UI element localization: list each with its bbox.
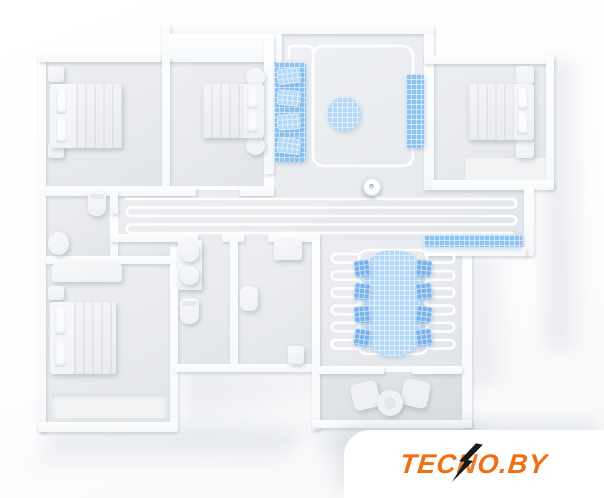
wall [38,52,168,62]
floor-wardrobe-platform [466,158,546,180]
dining-table-highlighted [364,250,422,356]
washbasin [48,232,69,255]
shadow-right-of-dining [470,256,525,386]
dining-chair [353,259,371,278]
blanket [468,84,514,140]
nightstand [48,286,64,300]
wall [170,264,178,422]
wall [176,364,312,372]
pillow [247,88,258,109]
wall [312,420,472,428]
wall [46,186,196,196]
shadow-right [548,60,600,350]
dining-chair [353,328,371,347]
corner-cabinet [274,240,302,260]
toilet [88,192,106,216]
wall [432,180,554,190]
dining-chair [415,282,433,301]
nightstand [516,66,534,84]
wall [462,240,472,428]
sofa-cushion [276,89,301,107]
tv-bench-highlighted [406,74,424,148]
blanket [74,302,116,374]
round-rug-highlighted [327,97,361,131]
sofa-cushion [276,137,302,156]
pillow [517,88,528,110]
brand-text-pre: TEC [399,451,459,478]
toilet [180,298,199,324]
blanket [202,84,244,138]
floorplan-scene: TEC N O.BY [0,0,604,498]
dining-chair [415,259,433,278]
wall [264,34,274,174]
shadow-bottom-left [23,430,305,482]
bath-fixture [288,346,304,364]
blanket [76,84,122,148]
balcony-chair [399,377,431,409]
robot-vacuum [363,178,381,196]
brand-letter-n: N [456,449,480,480]
wall [424,247,526,256]
sofa-highlighted [274,62,306,162]
dining-chair [415,328,433,347]
balcony-table [377,390,403,416]
wall [524,186,534,256]
sofa-cushion [276,67,302,86]
wall [318,366,384,374]
wall [424,56,554,64]
shadow-bottom-middle [185,372,330,442]
pillow [517,113,528,135]
wall [162,24,434,34]
bed [50,84,122,148]
sink [180,266,199,285]
brand-text-post: O.BY [476,451,549,478]
wall [162,56,170,192]
pillow [56,118,67,143]
floor-entry-nook [118,240,170,256]
pillow [55,340,66,367]
pillow [247,112,258,133]
wall [46,256,178,264]
low-dresser [52,394,166,418]
robot-button [369,184,374,189]
nightstand [516,140,534,158]
watermark-card: TEC N O.BY [344,430,604,498]
sink [180,243,199,262]
wall [240,186,274,196]
wall [546,56,554,188]
bed [50,302,116,374]
bed [202,84,264,138]
dresser [52,264,122,282]
dining-chair [415,305,433,324]
dining-chair [353,305,370,323]
pillow [55,308,66,335]
round-stool [246,136,265,155]
pillow [56,89,67,114]
sofa-cushion [276,113,301,131]
wall [110,190,118,214]
wall [312,240,320,430]
brand-logo: TEC N O.BY [399,449,550,480]
pedestal-sink [240,286,258,311]
wall [38,52,46,432]
wall [38,422,178,432]
wall [412,366,462,374]
nightstand [48,66,64,82]
kitchen-mat-highlighted [424,235,522,247]
wall [230,240,238,366]
dining-chair [353,282,371,301]
bed [468,84,534,140]
